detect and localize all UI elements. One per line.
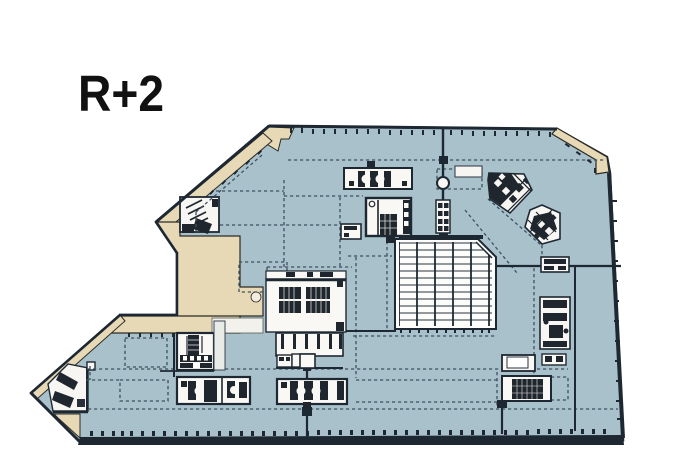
svg-text:R+2: R+2 xyxy=(78,65,164,122)
